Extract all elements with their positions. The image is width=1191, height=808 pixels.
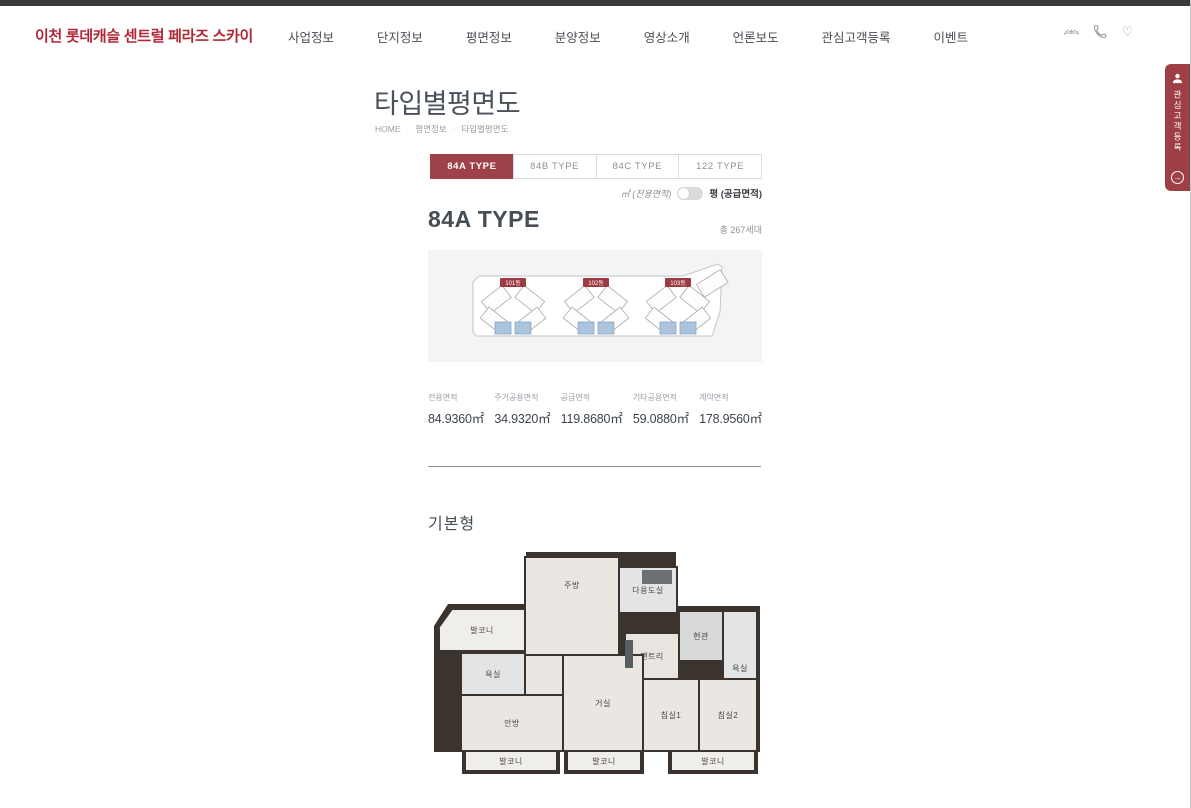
highlighted-unit — [495, 322, 511, 334]
nav-item-press[interactable]: 언론보도 — [733, 27, 779, 46]
section-divider — [428, 466, 761, 467]
area-value: 84.9360㎡ — [428, 408, 484, 427]
highlighted-unit — [598, 322, 614, 334]
unit-label-pyeong: 평 (공급면적) — [709, 186, 762, 200]
building-label: 102동 — [588, 280, 604, 287]
wings-icon[interactable] — [1064, 24, 1079, 39]
area-cell-residential-common: 주거공용면적 34.9320㎡ — [494, 392, 550, 427]
area-cell-contract: 계약면적 178.9560㎡ — [699, 392, 762, 427]
site-logo[interactable]: 이천 롯데캐슬 센트럴 페라즈 스카이 — [35, 25, 253, 46]
building-label: 103동 — [670, 280, 686, 287]
floor-plan: 발코니 욕실 주방 다용도실 팬트리 현관 욕실 안방 거실 침실1 침실2 발… — [428, 548, 760, 774]
main-nav: 사업정보 단지정보 평면정보 분양정보 영상소개 언론보도 관심고객등록 이벤트 — [288, 27, 968, 46]
area-cell-supply: 공급면적 119.8680㎡ — [561, 392, 623, 427]
highlighted-unit — [515, 322, 531, 334]
nav-item-complex[interactable]: 단지정보 — [377, 27, 423, 46]
nav-item-video[interactable]: 영상소개 — [644, 27, 690, 46]
highlighted-unit — [660, 322, 676, 334]
area-label: 전용면적 — [428, 392, 484, 403]
room-living: 거실 — [562, 654, 644, 752]
tab-122-type[interactable]: 122 TYPE — [678, 154, 762, 179]
room-balcony-bottom2: 발코니 — [566, 750, 642, 772]
nav-item-register[interactable]: 관심고객등록 — [822, 27, 891, 46]
room-bedroom1: 침실1 — [642, 678, 700, 752]
breadcrumb-separator: · — [453, 124, 456, 134]
area-label: 주거공용면적 — [494, 392, 550, 403]
total-households: 총 267세대 — [428, 223, 762, 236]
person-icon — [1172, 73, 1183, 84]
building-label: 101동 — [505, 280, 521, 287]
room-balcony-topleft: 발코니 — [438, 608, 526, 652]
area-table: 전용면적 84.9360㎡ 주거공용면적 34.9320㎡ 공급면적 119.8… — [428, 392, 762, 427]
nav-item-sales[interactable]: 분양정보 — [555, 27, 601, 46]
room-bath-left: 욕실 — [460, 652, 526, 696]
type-tabs: 84A TYPE 84B TYPE 84C TYPE 122 TYPE — [430, 154, 762, 179]
area-value: 178.9560㎡ — [699, 408, 762, 427]
shaft-block — [625, 640, 633, 668]
area-label: 공급면적 — [561, 392, 623, 403]
side-tab-label: 관심고객등록 — [1172, 90, 1184, 171]
interest-register-side-tab[interactable]: 관심고객등록 → — [1165, 64, 1190, 191]
breadcrumb-separator: · — [407, 124, 410, 134]
header-icons: ♡ — [1064, 24, 1135, 39]
breadcrumb: HOME · 평면정보 · 타입별평면도 — [375, 123, 508, 135]
area-cell-other-common: 기타공용면적 59.0880㎡ — [633, 392, 689, 427]
unit-toggle-switch[interactable] — [677, 187, 703, 200]
unit-label-m2: ㎡ (전용면적) — [621, 187, 672, 200]
highlighted-unit — [680, 322, 696, 334]
nav-item-floorplan[interactable]: 평면정보 — [466, 27, 512, 46]
tab-84b-type[interactable]: 84B TYPE — [513, 154, 597, 179]
heart-icon[interactable]: ♡ — [1120, 24, 1135, 39]
room-master-bedroom: 안방 — [460, 694, 564, 752]
area-value: 119.8680㎡ — [561, 408, 623, 427]
breadcrumb-floorplan-info[interactable]: 평면정보 — [415, 123, 446, 135]
site-map-graphic: 101동 102동 103동 — [428, 250, 762, 362]
room-balcony-bottom3: 발코니 — [670, 750, 756, 772]
tab-84a-type[interactable]: 84A TYPE — [430, 154, 514, 179]
page-title: 타입별평면도 — [374, 82, 520, 121]
room-balcony-bottom1: 발코니 — [464, 750, 558, 772]
breadcrumb-current: 타입별평면도 — [461, 123, 508, 135]
shaft-block — [642, 570, 672, 584]
area-value: 34.9320㎡ — [494, 408, 550, 427]
nav-item-event[interactable]: 이벤트 — [933, 27, 968, 46]
plan-variant-heading: 기본형 — [428, 510, 475, 534]
phone-icon[interactable] — [1092, 24, 1107, 39]
site-location-map: 101동 102동 103동 — [428, 250, 762, 362]
tab-84c-type[interactable]: 84C TYPE — [596, 154, 680, 179]
room-bedroom2: 침실2 — [698, 678, 758, 752]
area-cell-exclusive: 전용면적 84.9360㎡ — [428, 392, 484, 427]
unit-toggle-row: ㎡ (전용면적) 평 (공급면적) — [428, 186, 762, 200]
top-accent-bar — [0, 0, 1190, 6]
room-kitchen: 주방 — [524, 556, 620, 656]
room-entrance: 현관 — [678, 610, 724, 662]
highlighted-unit — [578, 322, 594, 334]
arrow-circle-icon: → — [1171, 171, 1184, 184]
breadcrumb-home[interactable]: HOME — [375, 124, 401, 134]
area-label: 계약면적 — [699, 392, 762, 403]
area-value: 59.0880㎡ — [633, 408, 689, 427]
toggle-knob — [678, 188, 689, 199]
nav-item-business[interactable]: 사업정보 — [288, 27, 334, 46]
area-label: 기타공용면적 — [633, 392, 689, 403]
room-bath-right: 욕실 — [722, 610, 758, 680]
